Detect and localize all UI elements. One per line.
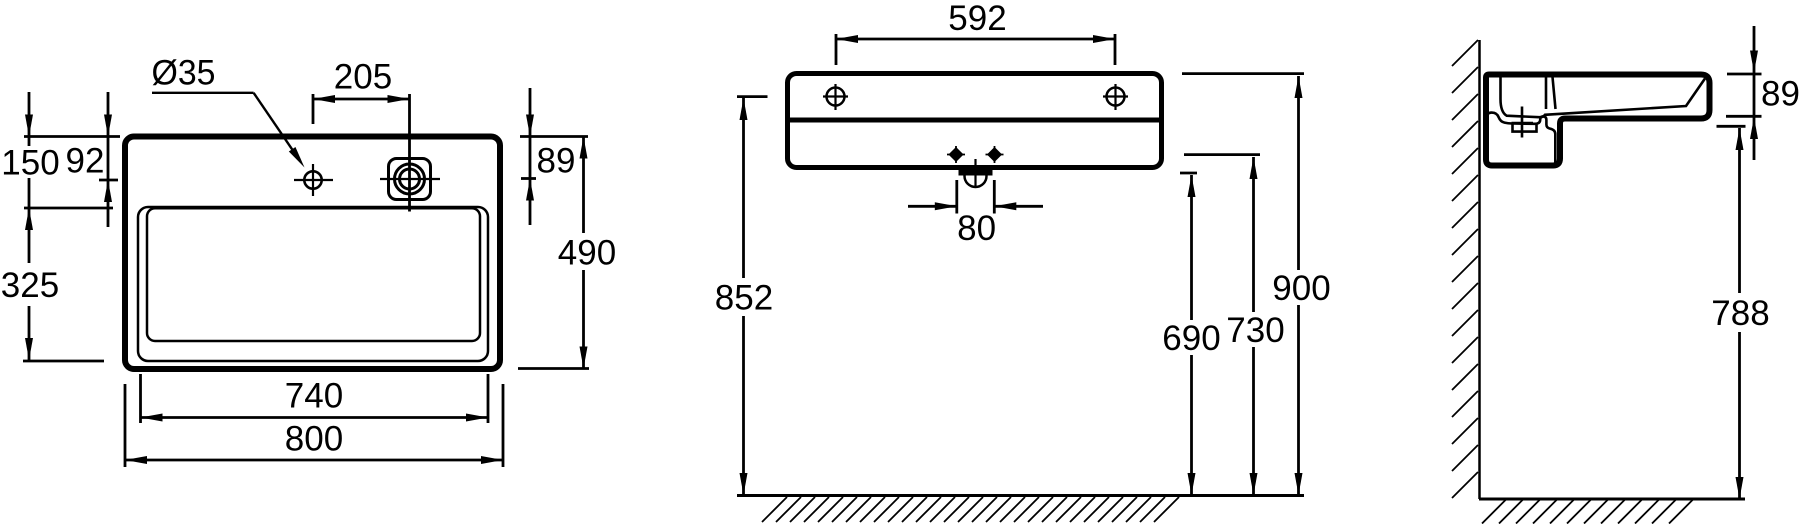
svg-text:740: 740 <box>285 377 343 416</box>
svg-text:900: 900 <box>1272 269 1330 308</box>
svg-text:690: 690 <box>1162 319 1220 358</box>
svg-text:325: 325 <box>1 266 59 305</box>
svg-text:490: 490 <box>558 234 616 273</box>
svg-text:592: 592 <box>948 0 1006 38</box>
svg-text:150: 150 <box>1 144 59 183</box>
svg-text:89: 89 <box>537 142 576 181</box>
svg-text:730: 730 <box>1226 311 1284 350</box>
svg-text:80: 80 <box>957 209 996 248</box>
svg-text:89: 89 <box>1761 75 1800 114</box>
svg-text:Ø35: Ø35 <box>152 54 216 93</box>
svg-text:92: 92 <box>66 142 105 181</box>
svg-text:852: 852 <box>715 279 773 318</box>
svg-text:800: 800 <box>285 420 343 459</box>
svg-text:205: 205 <box>334 58 392 97</box>
svg-text:788: 788 <box>1711 294 1769 333</box>
